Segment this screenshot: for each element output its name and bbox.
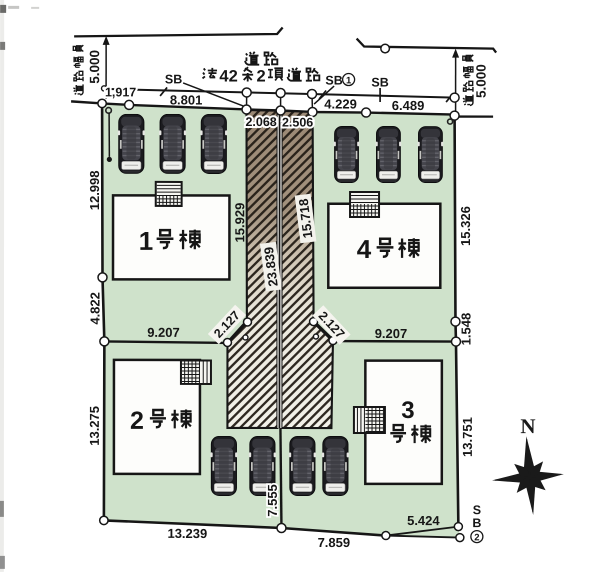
svg-text:2: 2 [474, 532, 479, 543]
svg-text:1.548: 1.548 [458, 313, 473, 346]
svg-text:N: N [520, 414, 535, 438]
svg-text:5.424: 5.424 [407, 513, 440, 528]
svg-text:7.859: 7.859 [318, 535, 351, 550]
svg-text:12.998: 12.998 [87, 171, 102, 211]
svg-text:2.506: 2.506 [282, 115, 313, 129]
svg-text:5.000: 5.000 [87, 50, 102, 84]
svg-text:6.489: 6.489 [392, 98, 425, 113]
svg-text:3: 3 [401, 397, 414, 424]
svg-text:15.929: 15.929 [232, 203, 247, 243]
svg-text:SB: SB [325, 74, 342, 88]
svg-text:2.068: 2.068 [245, 115, 276, 129]
svg-text:S: S [473, 503, 481, 517]
svg-text:8.801: 8.801 [170, 92, 203, 107]
svg-text:B: B [472, 516, 481, 530]
svg-text:4.822: 4.822 [87, 292, 102, 325]
svg-text:1: 1 [139, 226, 153, 256]
svg-text:1,917: 1,917 [105, 85, 136, 99]
svg-text:15.326: 15.326 [458, 206, 473, 246]
svg-text:2: 2 [257, 67, 266, 85]
svg-text:13.239: 13.239 [167, 526, 207, 541]
svg-text:4.229: 4.229 [324, 97, 357, 112]
svg-text:SB: SB [165, 72, 182, 86]
svg-text:7.555: 7.555 [265, 484, 280, 517]
svg-text:1: 1 [346, 75, 352, 86]
svg-text:13.275: 13.275 [87, 406, 102, 446]
svg-text:9.207: 9.207 [147, 325, 180, 340]
svg-text:42: 42 [219, 67, 237, 85]
svg-text:9.207: 9.207 [375, 326, 408, 341]
svg-text:2: 2 [130, 407, 144, 435]
svg-text:4: 4 [357, 234, 372, 264]
svg-text:5.000: 5.000 [474, 64, 489, 98]
svg-text:SB: SB [371, 76, 388, 90]
svg-text:13.751: 13.751 [460, 417, 475, 457]
